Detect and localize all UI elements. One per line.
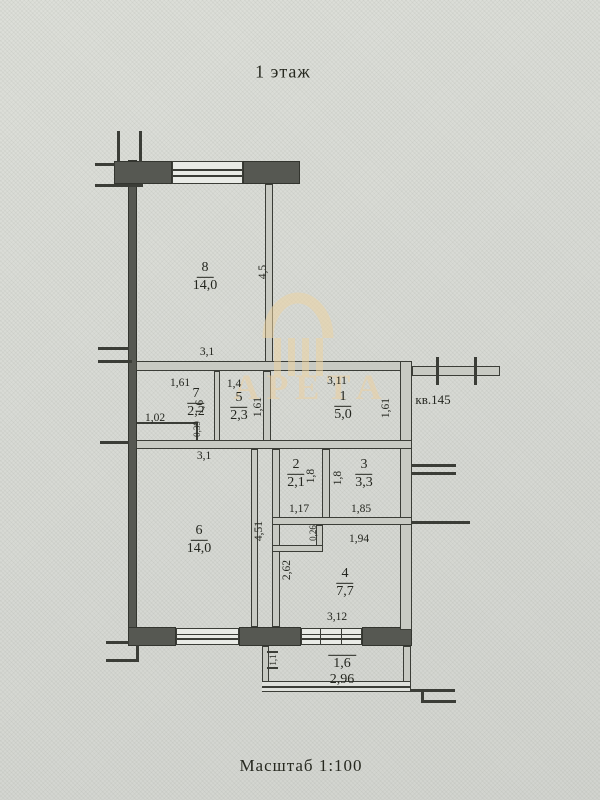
stub-line (106, 659, 139, 662)
dimension-tick (474, 357, 477, 385)
wall-top-left (114, 161, 172, 184)
room-number: 8 (197, 261, 214, 278)
room-area: 5,0 (334, 407, 352, 423)
room-label-5: 5 2,3 (230, 391, 248, 423)
dim-room2-height: 1,8 (305, 469, 317, 483)
dim-room6-width: 3,1 (197, 450, 211, 462)
dim-closet-width: 1,02 (145, 412, 165, 424)
wall-stub-right-top (412, 366, 500, 376)
wall-bottom-a (128, 627, 176, 646)
dim-hall-width: 3,11 (327, 375, 347, 387)
room-label-4: 4 7,7 (336, 567, 354, 599)
room-number: 4 (337, 567, 354, 584)
stub-line (412, 464, 456, 467)
room-area: 14,0 (193, 278, 218, 294)
dim-balcony-depth: 1,1 (268, 654, 278, 665)
page-title: 1 этаж (255, 62, 311, 83)
dim-room7-width: 1,61 (170, 377, 190, 389)
apartment-ref-label: кв.145 (415, 392, 450, 408)
wall-rooms23-bottom (272, 517, 412, 525)
stub-line (100, 441, 129, 444)
dim-room8-width: 3,1 (200, 346, 214, 358)
room-label-1: 1 5,0 (334, 390, 352, 422)
room-label-balcony: 1,6 2,96 (328, 655, 356, 687)
room-area: 7,7 (336, 584, 354, 600)
room-number: 2 (288, 458, 305, 475)
stub-line (412, 472, 456, 475)
room-number: 6 (191, 524, 208, 541)
dim-room8-height: 4,5 (257, 265, 269, 279)
stub-line (139, 131, 142, 162)
dim-room4-left-height: 2,62 (281, 560, 293, 580)
dim-hall-height: 1,61 (380, 398, 392, 418)
dim-closet-depth: 0,39 (192, 421, 202, 437)
room-label-2: 2 2,1 (287, 458, 305, 490)
room-label-3: 3 3,3 (355, 458, 373, 490)
wall-div-7-5 (214, 371, 220, 441)
dimension-bracket (267, 651, 278, 653)
dim-room5-width: 1,4 (227, 378, 241, 390)
dim-room5-height: 1,61 (252, 397, 264, 417)
wall-right-outer (400, 361, 412, 630)
wall-bottom-b (239, 627, 301, 646)
stub-line (117, 131, 120, 162)
watermark-arch-icon (262, 286, 334, 376)
floor-plan-sheet: { "title": "1 этаж", "scale_caption": "М… (0, 0, 600, 800)
dim-niche-width: 1,94 (349, 533, 369, 545)
room-width: 2,96 (328, 672, 356, 688)
stub-line (98, 360, 132, 363)
stub-line (106, 641, 129, 644)
dim-room3-height: 1,8 (332, 471, 344, 485)
stub-line (95, 163, 115, 166)
scale-caption: Масштаб 1:100 (239, 756, 362, 776)
room-area: 1,6 (328, 655, 356, 672)
wall-top-right (243, 161, 300, 184)
dimension-tick (436, 357, 439, 385)
wall-div-2-3 (322, 449, 330, 518)
stub-line (410, 689, 455, 692)
stub-line (423, 700, 456, 703)
stub-line (412, 521, 470, 524)
room-area: 3,3 (355, 475, 373, 491)
dim-room4-width: 3,12 (327, 611, 347, 623)
room-label-8: 8 14,0 (193, 261, 218, 293)
room-area: 2,3 (230, 408, 248, 424)
dim-room3-width: 1,85 (351, 503, 371, 515)
dim-room2-width: 1,17 (289, 503, 309, 515)
wall-shaft-right (272, 449, 280, 627)
room-area: 14,0 (187, 541, 212, 557)
window-room6 (176, 628, 239, 645)
room-area: 2,1 (287, 475, 305, 491)
dim-room6-height: 4,51 (253, 521, 265, 541)
room-number: 3 (356, 458, 373, 475)
wall-hall-bottom (136, 440, 412, 449)
room-number: 1 (335, 390, 352, 407)
wall-left-outer (128, 160, 137, 646)
window-room8 (172, 161, 243, 184)
stub-line (95, 184, 143, 187)
dim-niche-depth: 0,26 (308, 525, 318, 541)
room-number: 5 (231, 391, 248, 408)
wall-niche-horizontal (272, 545, 323, 552)
window-balcony-door (301, 628, 362, 645)
dim-room7-height: 1,6 (194, 400, 206, 414)
room-label-6: 6 14,0 (187, 524, 212, 556)
stub-line (98, 347, 129, 350)
dimension-bracket (267, 667, 278, 669)
